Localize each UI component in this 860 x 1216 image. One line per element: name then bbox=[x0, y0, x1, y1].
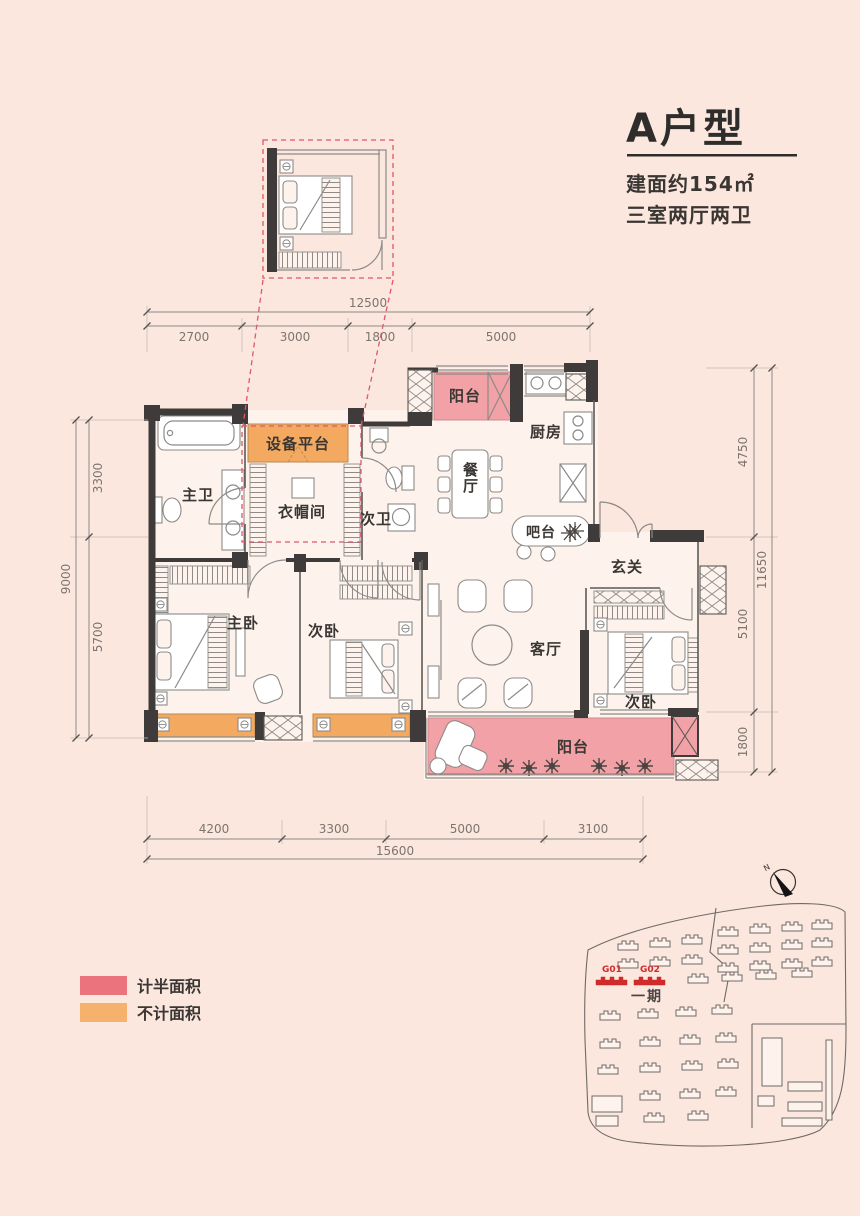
legend-swatch-excluded-area bbox=[80, 1003, 127, 1022]
dim-top-total: 12500 bbox=[349, 296, 387, 310]
title-layout: 三室两厅两卫 bbox=[626, 203, 752, 227]
dim-right-total: 11650 bbox=[755, 551, 769, 589]
dim-top-seg1: 2700 bbox=[179, 330, 210, 344]
dim-left-seg1: 3300 bbox=[91, 463, 105, 494]
dim-left-seg2: 5700 bbox=[91, 622, 105, 653]
legend: 计半面积 不计面积 bbox=[80, 976, 201, 1023]
dim-right-seg1: 4750 bbox=[736, 437, 750, 468]
label-foyer: 玄关 bbox=[611, 558, 643, 576]
site-buildings bbox=[592, 920, 832, 1126]
label-dining: 餐厅 bbox=[461, 461, 479, 494]
floorplan-canvas: A户型 建面约154㎡ 三室两厅两卫 bbox=[0, 0, 860, 1216]
site-phase-label: 一期 bbox=[631, 989, 663, 1005]
dim-top-seg4: 5000 bbox=[486, 330, 517, 344]
dim-bottom-seg4: 3100 bbox=[578, 822, 609, 836]
label-bar: 吧台 bbox=[526, 524, 556, 541]
dim-bottom-seg3: 5000 bbox=[450, 822, 481, 836]
half-area-shaft bbox=[672, 716, 698, 756]
page-title: A户型 bbox=[626, 106, 746, 152]
dim-bottom-seg1: 4200 bbox=[199, 822, 230, 836]
site-unit-g01: G01 bbox=[602, 965, 622, 975]
site-highlighted-buildings: G01 G02 一期 bbox=[596, 965, 665, 1005]
label-master-bath: 主卫 bbox=[182, 486, 214, 504]
dim-bottom-seg2: 3300 bbox=[319, 822, 350, 836]
label-balcony-bottom: 阳台 bbox=[557, 738, 589, 756]
label-cloakroom: 衣帽间 bbox=[278, 503, 326, 521]
legend-label-half-area: 计半面积 bbox=[137, 977, 201, 996]
dimension-bottom: 4200 3300 5000 3100 15600 bbox=[144, 796, 647, 864]
excluded-area-bay-window-bed2 bbox=[313, 714, 410, 737]
dimension-left: 9000 3300 5700 bbox=[59, 417, 148, 742]
site-unit-g02: G02 bbox=[640, 965, 660, 975]
title-block: A户型 建面约154㎡ 三室两厅两卫 bbox=[626, 106, 797, 227]
title-divider bbox=[627, 154, 797, 157]
label-equipment-platform: 设备平台 bbox=[266, 435, 330, 453]
compass-north-label: N bbox=[762, 862, 772, 873]
dim-right-seg3: 1800 bbox=[736, 727, 750, 758]
title-area: 建面约154㎡ bbox=[626, 172, 755, 196]
label-master-bedroom: 主卧 bbox=[227, 614, 259, 632]
dim-top-seg2: 3000 bbox=[280, 330, 311, 344]
label-living-room: 客厅 bbox=[529, 640, 562, 658]
legend-label-excluded-area: 不计面积 bbox=[137, 1004, 201, 1023]
label-second-bath: 次卫 bbox=[360, 510, 392, 528]
floorplan-page: A户型 建面约154㎡ 三室两厅两卫 bbox=[0, 0, 860, 1216]
dim-top-seg3: 1800 bbox=[365, 330, 396, 344]
label-kitchen: 厨房 bbox=[530, 423, 562, 441]
dim-left-total: 9000 bbox=[59, 564, 73, 595]
site-plan: N G01 bbox=[585, 862, 846, 1146]
dim-bottom-total: 15600 bbox=[376, 844, 414, 858]
compass: N bbox=[762, 862, 795, 897]
label-bedroom2: 次卧 bbox=[308, 622, 340, 640]
dim-right-seg2: 5100 bbox=[736, 609, 750, 640]
label-bedroom3: 次卧 bbox=[625, 693, 657, 711]
legend-swatch-half-area bbox=[80, 976, 127, 995]
dimension-top: 12500 2700 3000 1800 5000 bbox=[144, 296, 594, 352]
label-balcony-top: 阳台 bbox=[449, 387, 481, 405]
excluded-area-bay-window-master bbox=[152, 714, 255, 737]
